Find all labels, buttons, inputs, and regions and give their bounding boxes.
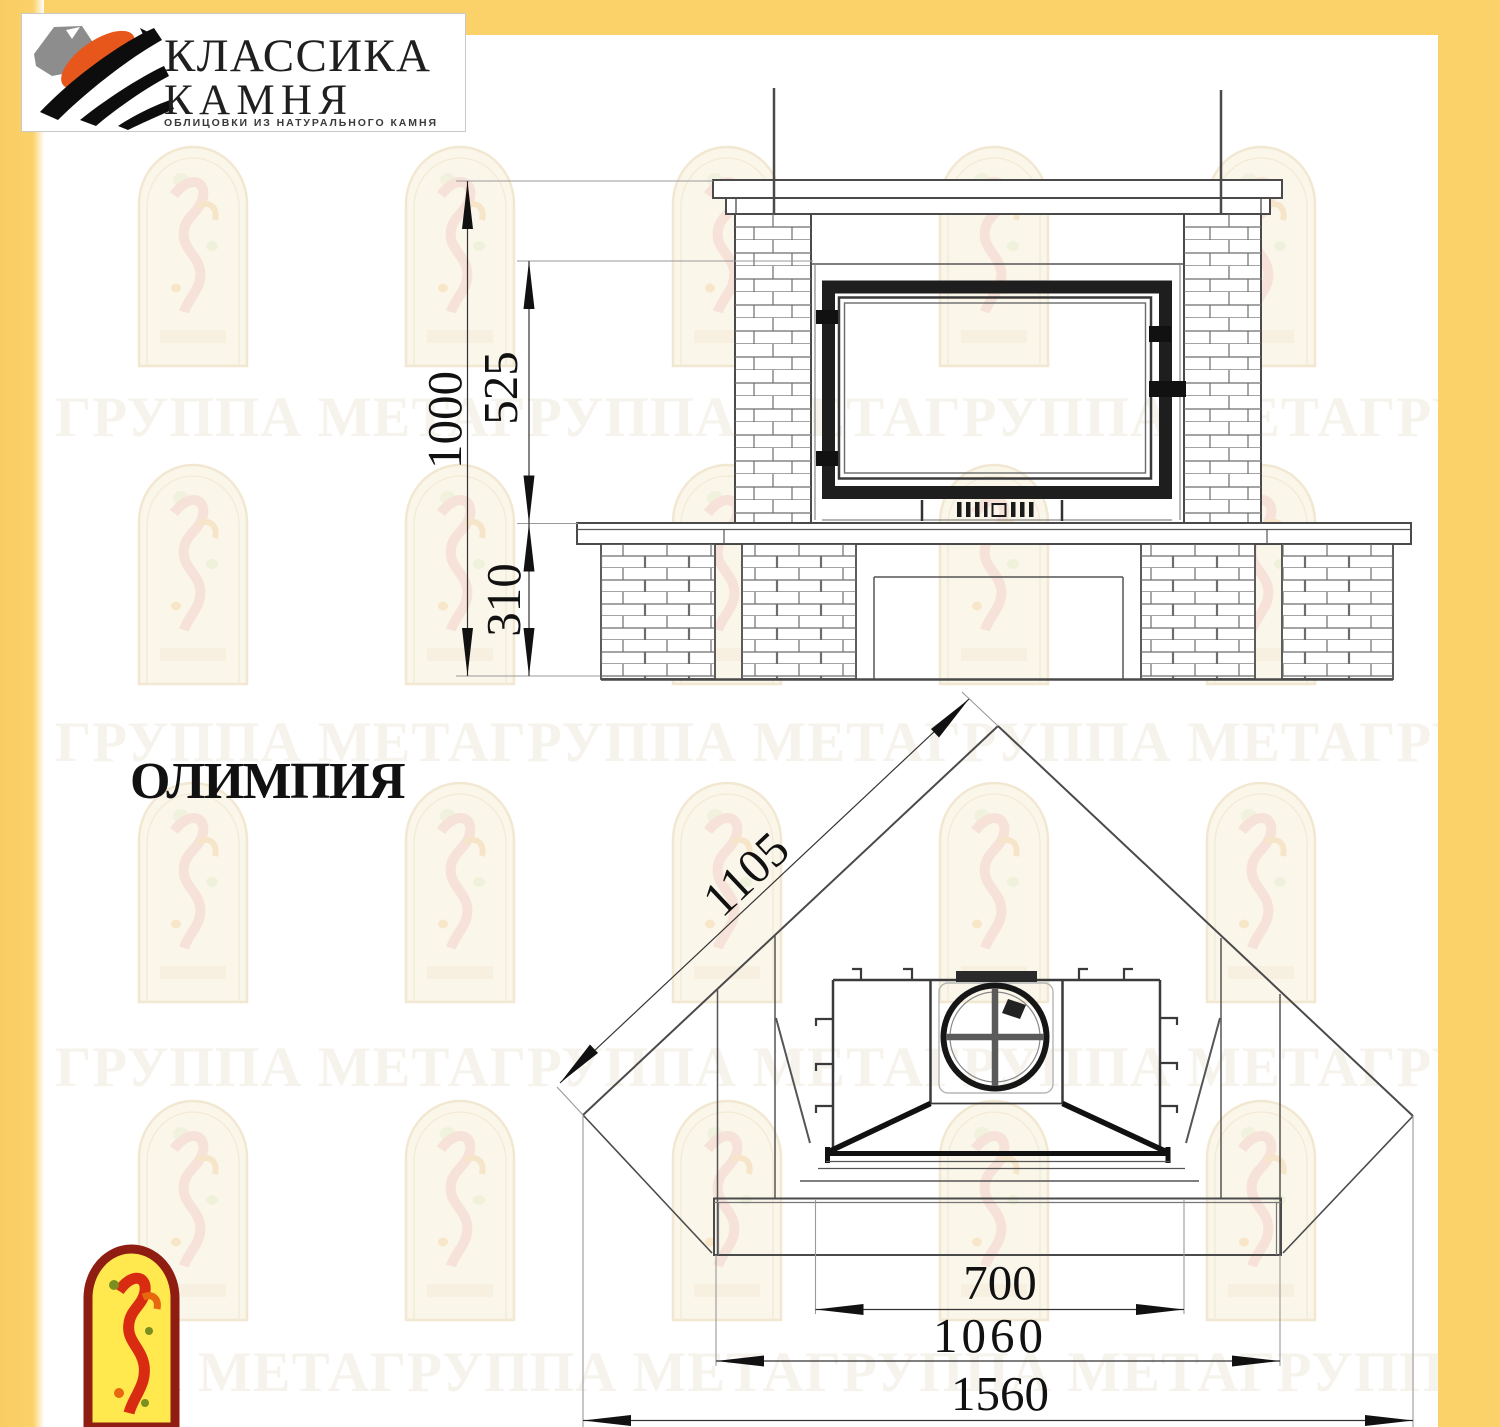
svg-text:525: 525	[473, 351, 528, 425]
svg-text:700: 700	[963, 1255, 1037, 1310]
svg-text:310: 310	[476, 563, 531, 637]
svg-text:1560: 1560	[951, 1366, 1049, 1421]
svg-text:1105: 1105	[692, 821, 800, 927]
svg-text:1000: 1000	[417, 371, 472, 469]
svg-text:1060: 1060	[933, 1308, 1047, 1363]
